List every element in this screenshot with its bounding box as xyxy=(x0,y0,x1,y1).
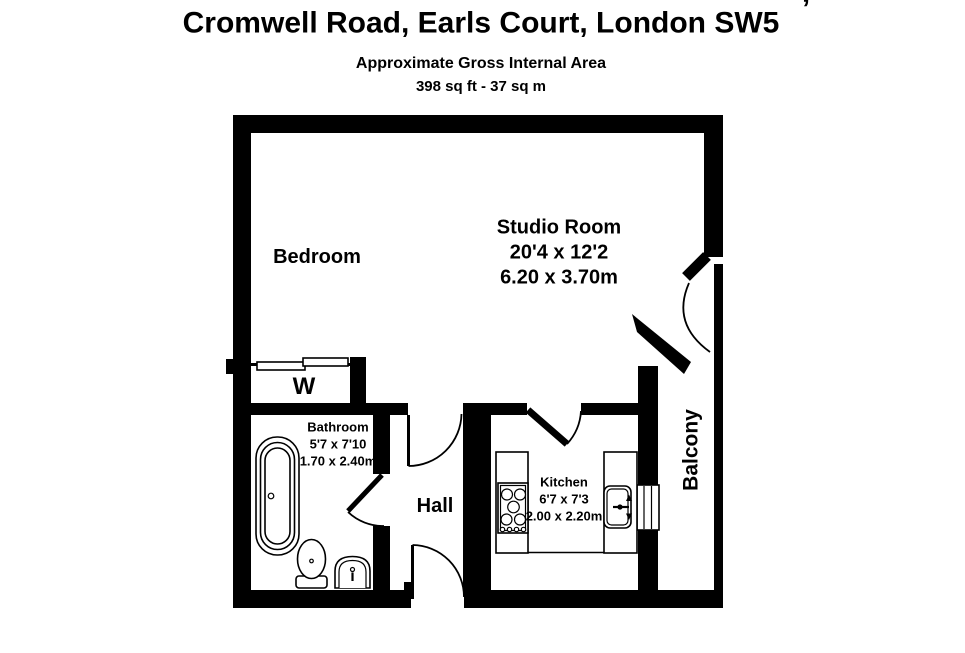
room-label-bedroom: Bedroom xyxy=(273,246,361,268)
studio-chamfer-wall xyxy=(632,314,691,374)
bottom-wall-right xyxy=(464,590,723,608)
kitchen-size-metric: 2.00 x 2.20m xyxy=(526,508,603,525)
bathroom-door-arc xyxy=(348,512,384,526)
balcony-left-wall xyxy=(638,366,658,590)
hob-burner xyxy=(515,489,526,500)
room-label-kitchen: Kitchen 6'7 x 7'3 2.00 x 2.20m xyxy=(526,474,603,525)
room-label-studio: Studio Room 20'4 x 12'2 6.20 x 3.70m xyxy=(497,216,621,291)
studio-size-imperial: 20'4 x 12'2 xyxy=(497,241,621,266)
room-label-hall: Hall xyxy=(417,495,454,517)
hall-kitchen-wall xyxy=(463,403,491,590)
hob-knob xyxy=(500,527,504,531)
entrance-door-arc xyxy=(413,545,465,597)
hob-knob xyxy=(521,527,525,531)
kitchen-balcony-window xyxy=(637,485,659,530)
bathroom-wall-lower xyxy=(373,526,390,590)
hob-burner xyxy=(502,489,513,500)
hob-burner xyxy=(501,514,512,525)
bathroom-size-metric: 1.70 x 2.40m xyxy=(300,453,377,470)
hall-studio-door-arc xyxy=(409,414,462,466)
balcony-door-leaf xyxy=(686,256,707,277)
hob-knob xyxy=(514,527,518,531)
room-label-bathroom: Bathroom 5'7 x 7'10 1.70 x 2.40m xyxy=(300,419,377,470)
left-wall xyxy=(233,115,251,608)
studio-name: Studio Room xyxy=(497,216,621,241)
balcony-door-arc xyxy=(683,283,710,352)
studio-right-wall xyxy=(704,115,723,257)
floorplan-svg xyxy=(0,0,965,653)
kitchen-name: Kitchen xyxy=(526,474,603,491)
wardrobe-right-wall xyxy=(350,357,366,403)
balcony-right-rail xyxy=(714,264,723,596)
wardrobe-sliding-door-left xyxy=(257,362,305,370)
bathroom-size-imperial: 5'7 x 7'10 xyxy=(300,436,377,453)
hob-knob xyxy=(507,527,511,531)
room-label-wardrobe: W xyxy=(293,374,316,400)
studio-size-metric: 6.20 x 3.70m xyxy=(497,266,621,291)
top-wall xyxy=(233,115,723,133)
bathroom-name: Bathroom xyxy=(300,419,377,436)
left-wall-pier xyxy=(226,359,234,374)
sink-tap-dot xyxy=(617,504,622,509)
wardrobe-sliding-door-right xyxy=(303,358,348,366)
hob-burner xyxy=(515,514,526,525)
basin-tap-icon xyxy=(351,568,355,572)
kitchen-size-imperial: 6'7 x 7'3 xyxy=(526,491,603,508)
kitchen-door-leaf xyxy=(528,410,567,444)
toilet-flush-dot xyxy=(310,559,314,563)
room-label-balcony: Balcony xyxy=(679,409,702,491)
kitchen-door-arc xyxy=(567,411,581,444)
bathtub-drain xyxy=(268,493,274,499)
bottom-wall-left xyxy=(233,590,411,608)
hob-burner xyxy=(508,501,520,513)
bathroom-door-leaf xyxy=(348,475,382,511)
floorplan-page: Cromwell Road, Earls Court, London SW5 ’… xyxy=(0,0,965,653)
